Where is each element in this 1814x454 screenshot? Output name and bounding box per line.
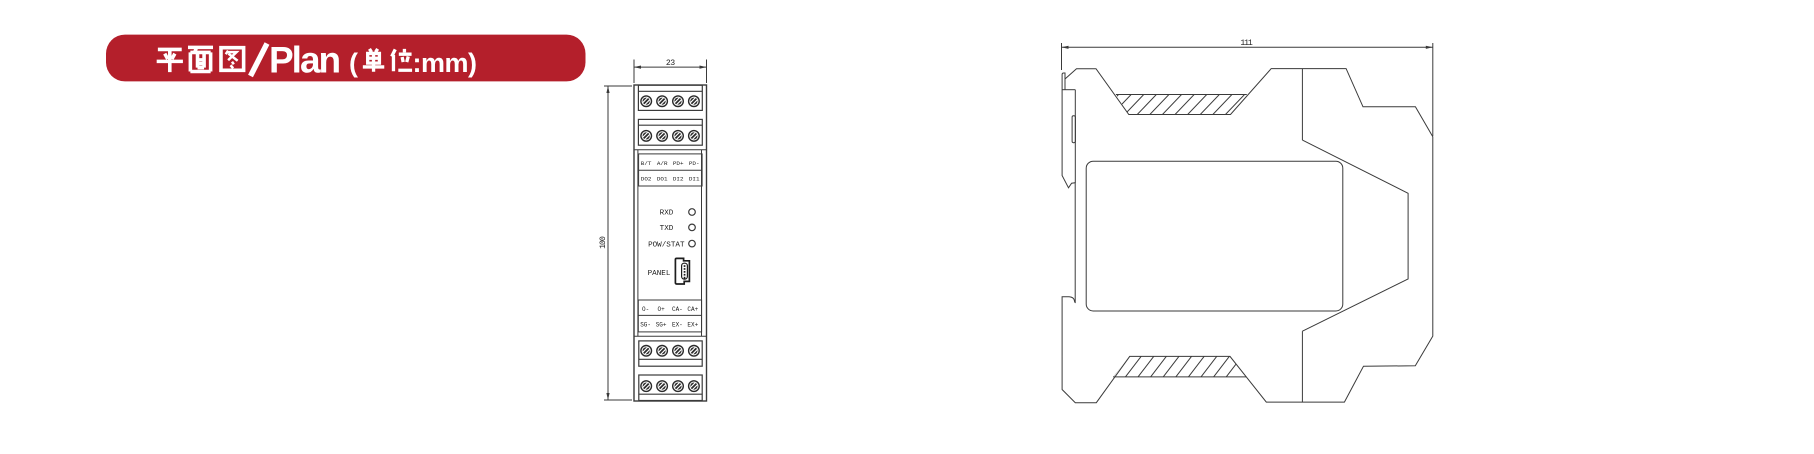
svg-text:SG-: SG- xyxy=(640,322,651,329)
svg-text:SG+: SG+ xyxy=(656,322,667,329)
svg-text:EX-: EX- xyxy=(672,322,683,329)
svg-text:111: 111 xyxy=(1240,39,1252,48)
svg-text:CA+: CA+ xyxy=(687,306,698,313)
svg-text:DI2: DI2 xyxy=(673,175,684,182)
svg-text:PANEL: PANEL xyxy=(648,270,671,278)
svg-text:B/T: B/T xyxy=(641,160,652,167)
svg-text:DI1: DI1 xyxy=(689,175,700,182)
svg-text:A/R: A/R xyxy=(657,160,668,167)
svg-text:Plan: Plan xyxy=(269,40,340,81)
svg-text:23: 23 xyxy=(666,59,675,68)
svg-text:TXD: TXD xyxy=(660,225,674,233)
svg-text:O-: O- xyxy=(642,306,649,313)
svg-text:EX+: EX+ xyxy=(687,322,698,329)
svg-text:O+: O+ xyxy=(657,306,665,313)
svg-text::mm): :mm) xyxy=(413,48,477,78)
svg-text:100: 100 xyxy=(599,236,608,249)
svg-text:PD+: PD+ xyxy=(673,160,684,167)
svg-text:DO1: DO1 xyxy=(657,175,668,182)
svg-text:RXD: RXD xyxy=(660,210,674,218)
svg-text:POW/STAT: POW/STAT xyxy=(648,241,685,249)
svg-text:(: ( xyxy=(349,48,358,78)
svg-text:CA-: CA- xyxy=(672,306,683,313)
svg-text:PD-: PD- xyxy=(689,160,700,167)
svg-text:DO2: DO2 xyxy=(641,175,652,182)
